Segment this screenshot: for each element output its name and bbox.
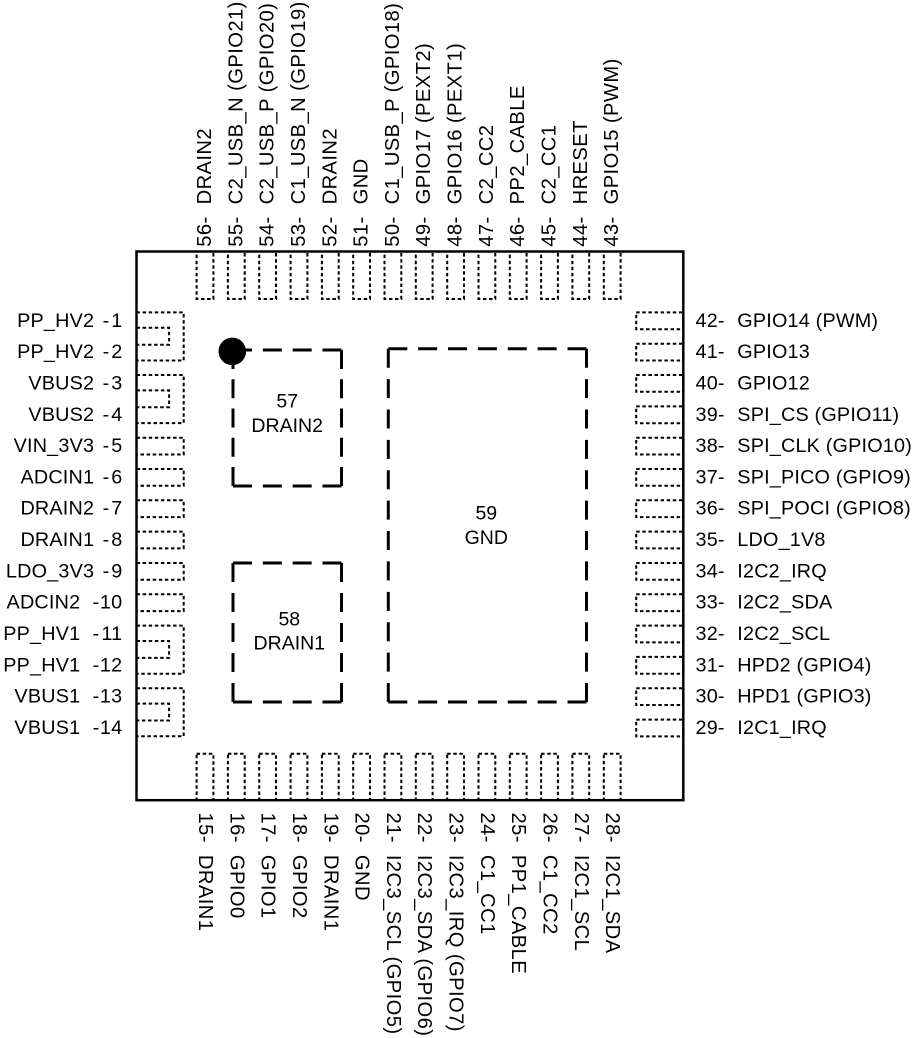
svg-text:35-LDO_1V8: 35-LDO_1V8 [696, 529, 826, 551]
svg-text:17- GPIO1: 17- GPIO1 [257, 813, 279, 919]
svg-text:59: 59 [475, 503, 497, 525]
svg-text:40-GPIO12: 40-GPIO12 [696, 372, 810, 394]
svg-text:42-GPIO14 (PWM): 42-GPIO14 (PWM) [696, 310, 879, 332]
svg-text:PP_HV2-1: PP_HV2-1 [17, 310, 122, 332]
svg-text:55- C2_USB_N (GPIO21): 55- C2_USB_N (GPIO21) [225, 1, 247, 247]
svg-text:PP_HV1-11: PP_HV1-11 [3, 623, 122, 645]
svg-text:43- GPIO15 (PWM): 43- GPIO15 (PWM) [601, 58, 623, 247]
svg-text:16- GPIO0: 16- GPIO0 [225, 813, 247, 919]
svg-text:23- I2C3_IRQ (GPIO7): 23- I2C3_IRQ (GPIO7) [445, 813, 467, 1032]
svg-text:52- DRAIN2: 52- DRAIN2 [319, 128, 341, 247]
svg-text:VBUS2-3: VBUS2-3 [28, 372, 122, 394]
svg-text:45- C2_CC1: 45- C2_CC1 [539, 125, 561, 247]
svg-text:31-HPD2 (GPIO4): 31-HPD2 (GPIO4) [696, 654, 872, 676]
svg-text:DRAIN1-8: DRAIN1-8 [20, 529, 122, 551]
svg-text:34-I2C2_IRQ: 34-I2C2_IRQ [696, 560, 827, 582]
svg-text:15- DRAIN1: 15- DRAIN1 [194, 813, 216, 932]
svg-text:50- C1_USB_P (GPIO18): 50- C1_USB_P (GPIO18) [382, 3, 404, 247]
svg-text:ADCIN2-10: ADCIN2-10 [7, 592, 123, 614]
svg-text:26- C1_CC2: 26- C1_CC2 [539, 813, 561, 935]
svg-text:24- C1_CC1: 24- C1_CC1 [476, 813, 498, 935]
svg-text:44- HRESET: 44- HRESET [570, 120, 592, 247]
svg-text:29-I2C1_IRQ: 29-I2C1_IRQ [696, 717, 827, 739]
svg-text:DRAIN2: DRAIN2 [251, 415, 323, 437]
svg-text:25- PP1_CABLE: 25- PP1_CABLE [507, 813, 529, 975]
svg-text:VBUS1-14: VBUS1-14 [14, 717, 122, 739]
svg-text:28- I2C1_SDA: 28- I2C1_SDA [601, 813, 623, 954]
svg-text:53- C1_USB_N (GPIO19): 53- C1_USB_N (GPIO19) [288, 1, 310, 247]
svg-text:38-SPI_CLK (GPIO10): 38-SPI_CLK (GPIO10) [696, 435, 913, 457]
svg-text:54- C2_USB_P (GPIO20): 54- C2_USB_P (GPIO20) [257, 3, 279, 247]
svg-text:ADCIN1-6: ADCIN1-6 [20, 466, 122, 488]
svg-text:56- DRAIN2: 56- DRAIN2 [194, 128, 216, 247]
svg-text:48- GPIO16 (PEXT1): 48- GPIO16 (PEXT1) [445, 43, 467, 247]
svg-text:46- PP2_CABLE: 46- PP2_CABLE [507, 85, 529, 247]
svg-text:21- I2C3_SCL (GPIO5): 21- I2C3_SCL (GPIO5) [382, 813, 404, 1035]
svg-text:18- GPIO2: 18- GPIO2 [288, 813, 310, 919]
svg-text:DRAIN2-7: DRAIN2-7 [20, 498, 122, 520]
svg-text:37-SPI_PICO (GPIO9): 37-SPI_PICO (GPIO9) [696, 466, 911, 488]
svg-text:51- GND: 51- GND [351, 158, 373, 246]
svg-text:49- GPIO17 (PEXT2): 49- GPIO17 (PEXT2) [413, 43, 435, 247]
svg-text:47- C2_CC2: 47- C2_CC2 [476, 125, 498, 247]
svg-text:41-GPIO13: 41-GPIO13 [696, 341, 810, 363]
svg-text:20- GND: 20- GND [351, 813, 373, 901]
svg-text:30-HPD1 (GPIO3): 30-HPD1 (GPIO3) [696, 686, 872, 708]
svg-text:27- I2C1_SCL: 27- I2C1_SCL [570, 813, 592, 952]
svg-text:VBUS1-13: VBUS1-13 [14, 686, 122, 708]
svg-text:33-I2C2_SDA: 33-I2C2_SDA [696, 592, 833, 614]
svg-text:32-I2C2_SCL: 32-I2C2_SCL [696, 623, 831, 645]
svg-text:LDO_3V3-9: LDO_3V3-9 [6, 560, 123, 582]
svg-text:36-SPI_POCI (GPIO8): 36-SPI_POCI (GPIO8) [696, 498, 911, 520]
svg-text:VIN_3V3-5: VIN_3V3-5 [14, 435, 123, 457]
svg-text:DRAIN1: DRAIN1 [254, 633, 326, 655]
svg-text:39-SPI_CS (GPIO11): 39-SPI_CS (GPIO11) [696, 404, 900, 426]
svg-text:57: 57 [276, 391, 298, 413]
svg-text:GND: GND [465, 527, 508, 549]
svg-text:VBUS2-4: VBUS2-4 [28, 404, 122, 426]
svg-text:58: 58 [278, 609, 300, 631]
svg-text:PP_HV1-12: PP_HV1-12 [3, 654, 122, 676]
svg-text:PP_HV2-2: PP_HV2-2 [17, 341, 122, 363]
svg-text:22- I2C3_SDA (GPIO6): 22- I2C3_SDA (GPIO6) [413, 813, 435, 1037]
svg-text:19- DRAIN1: 19- DRAIN1 [319, 813, 341, 932]
